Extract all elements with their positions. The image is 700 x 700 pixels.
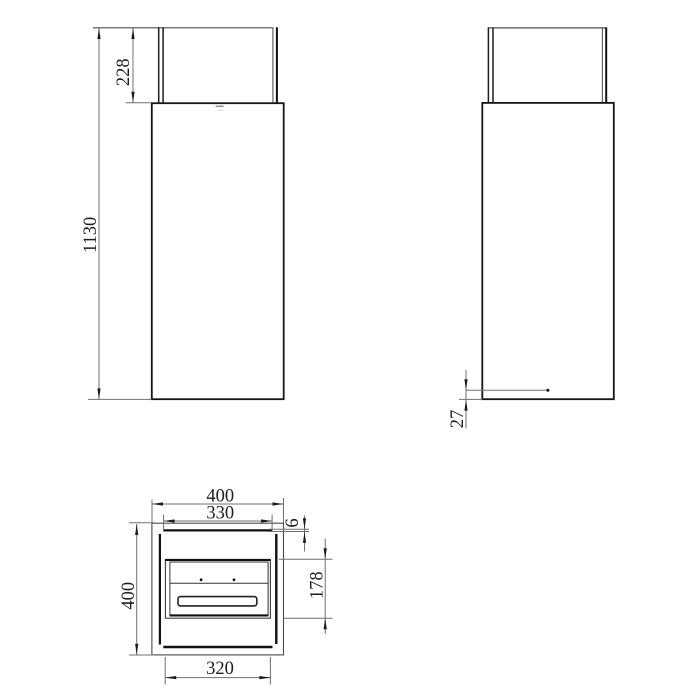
svg-text:6: 6 bbox=[283, 518, 303, 527]
svg-text:1130: 1130 bbox=[81, 217, 101, 253]
svg-text:330: 330 bbox=[206, 504, 234, 524]
svg-text:228: 228 bbox=[114, 58, 134, 86]
svg-text:178: 178 bbox=[307, 571, 327, 599]
svg-text:320: 320 bbox=[206, 659, 234, 679]
svg-text:400: 400 bbox=[119, 582, 139, 610]
svg-text:27: 27 bbox=[448, 410, 468, 429]
